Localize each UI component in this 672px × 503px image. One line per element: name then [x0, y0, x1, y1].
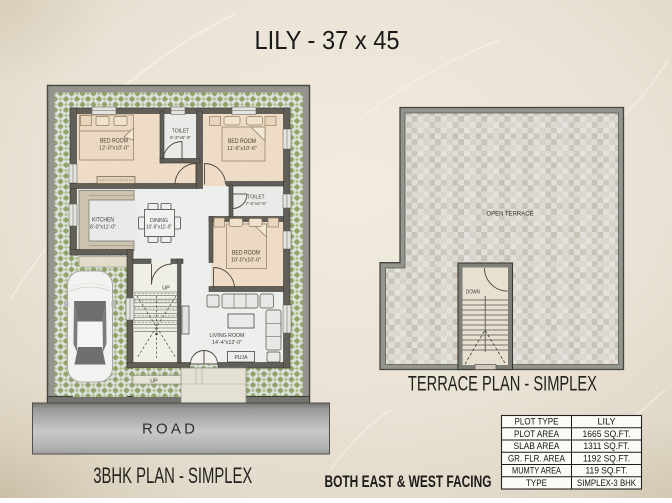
svg-text:SLAB AREA: SLAB AREA: [514, 441, 561, 451]
svg-text:BOTH EAST & WEST FACING: BOTH EAST & WEST FACING: [325, 473, 492, 491]
svg-text:BED ROOM: BED ROOM: [100, 139, 128, 145]
svg-text:TYPE: TYPE: [526, 478, 547, 488]
svg-text:1192 SQ.FT.: 1192 SQ.FT.: [583, 453, 630, 463]
svg-text:11'-6"x10'-6": 11'-6"x10'-6": [227, 146, 257, 152]
svg-text:GR. FLR. AREA: GR. FLR. AREA: [508, 453, 566, 463]
svg-text:12'-0"x10'-0": 12'-0"x10'-0": [99, 146, 129, 152]
svg-text:14'-4"x12'-0": 14'-4"x12'-0": [212, 340, 242, 346]
svg-text:TOILET: TOILET: [247, 195, 265, 201]
svg-text:PLOT TYPE: PLOT TYPE: [515, 417, 559, 427]
svg-text:MUMTY AREA: MUMTY AREA: [512, 466, 562, 476]
svg-text:119 SQ.FT.: 119 SQ.FT.: [586, 466, 628, 476]
svg-text:3BHK PLAN - SIMPLEX: 3BHK PLAN - SIMPLEX: [93, 463, 252, 488]
svg-text:PUJA: PUJA: [235, 355, 249, 361]
svg-text:7'-6"x4'-6": 7'-6"x4'-6": [246, 201, 267, 207]
svg-text:BED ROOM: BED ROOM: [232, 251, 260, 257]
svg-text:SIMPLEX-3 BHK: SIMPLEX-3 BHK: [577, 478, 637, 488]
svg-text:1665 SQ.FT.: 1665 SQ.FT.: [583, 429, 631, 439]
svg-text:OPEN TERRACE: OPEN TERRACE: [487, 211, 535, 218]
svg-text:KITCHEN: KITCHEN: [92, 218, 114, 224]
svg-text:1311 SQ.FT.: 1311 SQ.FT.: [584, 441, 630, 451]
svg-text:LILY - 37 x 45: LILY - 37 x 45: [255, 25, 400, 55]
svg-text:UP: UP: [150, 378, 158, 384]
svg-text:UP: UP: [162, 286, 170, 292]
svg-text:DOWN: DOWN: [466, 290, 480, 296]
svg-text:DINING: DINING: [150, 218, 168, 224]
svg-text:LILY: LILY: [598, 417, 616, 427]
svg-text:8'-0"x11'-0": 8'-0"x11'-0": [90, 225, 116, 231]
svg-text:TOILET: TOILET: [172, 129, 190, 135]
svg-text:10'-6"x11'-0": 10'-6"x11'-0": [146, 225, 172, 231]
svg-text:10'-0"x10'-0": 10'-0"x10'-0": [231, 258, 261, 264]
svg-text:5'-3"x6'-3": 5'-3"x6'-3": [170, 135, 191, 141]
svg-text:BED ROOM: BED ROOM: [228, 139, 256, 145]
svg-text:TERRACE PLAN - SIMPLEX: TERRACE PLAN - SIMPLEX: [408, 373, 597, 396]
svg-text:LIVING ROOM: LIVING ROOM: [210, 333, 245, 339]
svg-text:PLOT AREA: PLOT AREA: [514, 429, 560, 439]
